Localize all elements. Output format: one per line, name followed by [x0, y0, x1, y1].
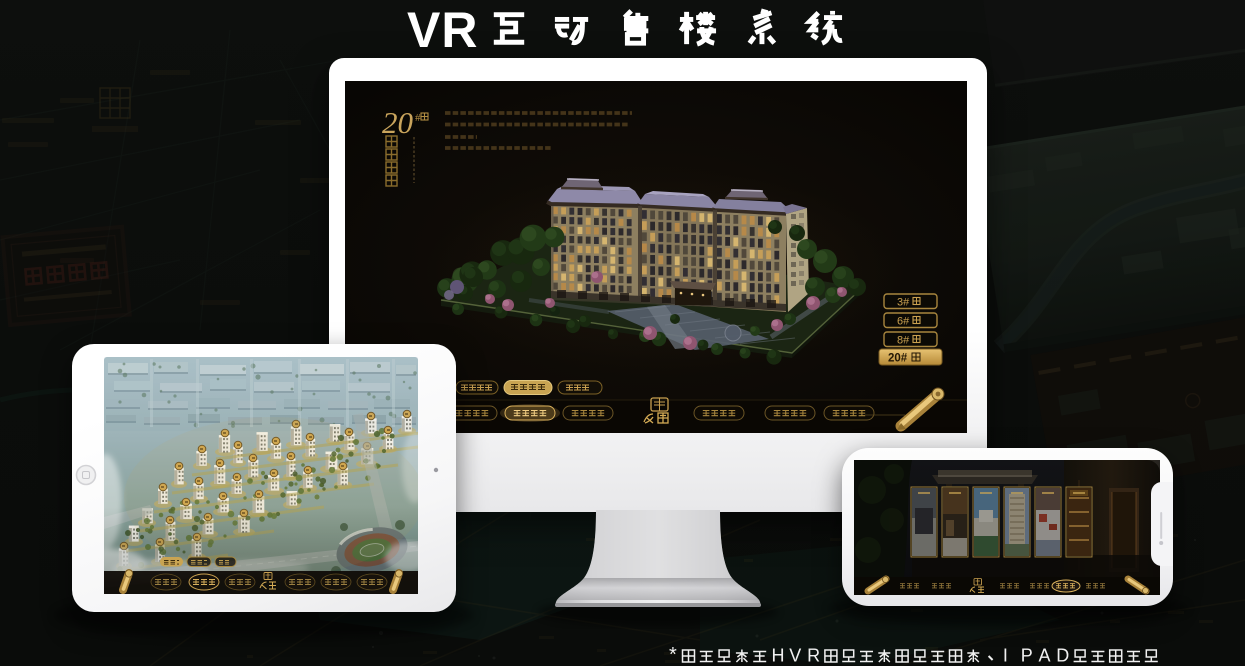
svg-text:3#: 3# [897, 297, 910, 309]
svg-text:#: # [415, 112, 421, 124]
svg-text:8#: 8# [897, 335, 910, 347]
svg-text:A: A [1039, 646, 1051, 666]
svg-text:R: R [807, 646, 820, 666]
svg-text:*: * [669, 644, 677, 666]
svg-text:P: P [1021, 646, 1033, 666]
svg-text:I: I [1003, 646, 1008, 666]
svg-text:D: D [1056, 646, 1069, 666]
svg-text:VR: VR [407, 2, 478, 58]
svg-text:V: V [789, 646, 801, 666]
svg-text:6#: 6# [897, 316, 910, 328]
svg-text:20: 20 [382, 105, 414, 140]
svg-text:20#: 20# [888, 353, 908, 365]
svg-text:H: H [772, 646, 785, 666]
